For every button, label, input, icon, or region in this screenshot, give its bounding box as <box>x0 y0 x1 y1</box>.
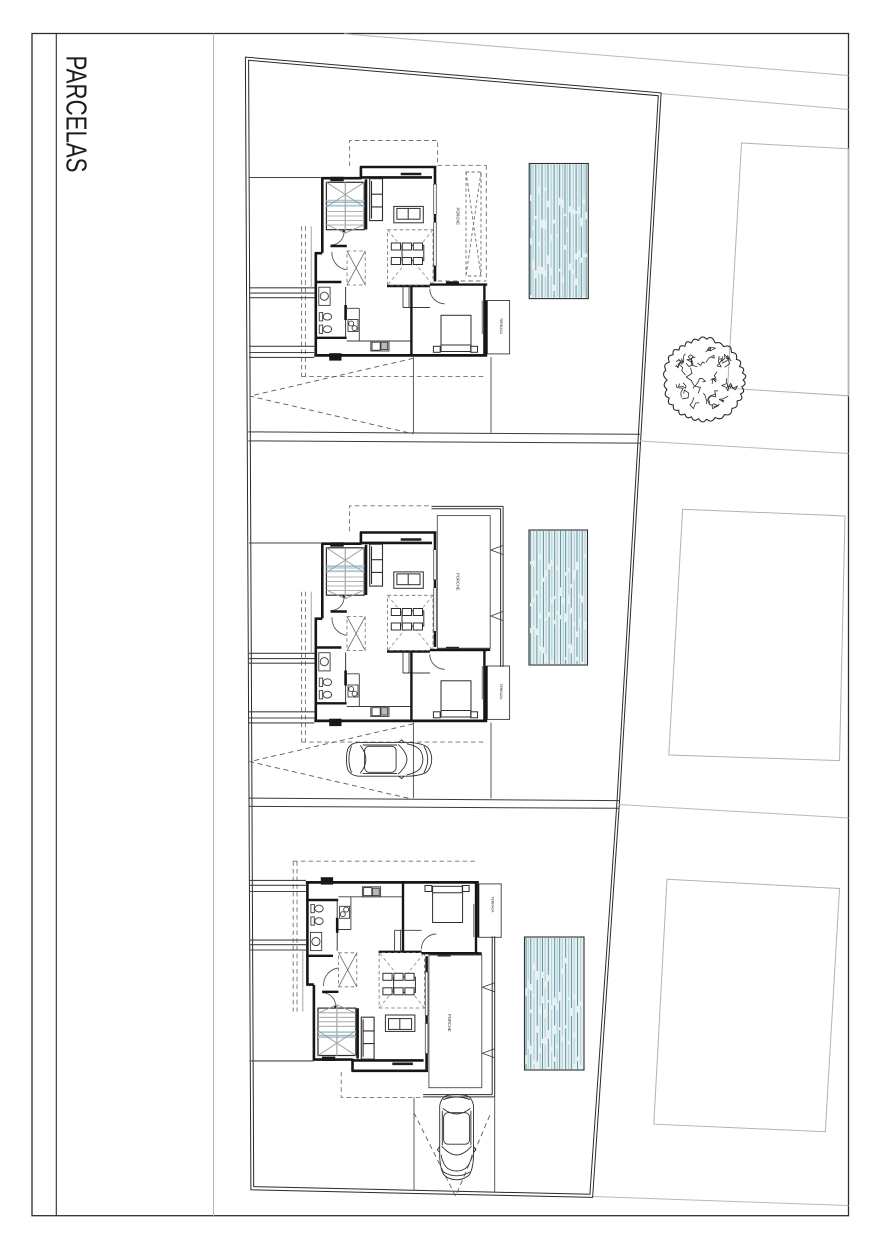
svg-text:TERRAZA: TERRAZA <box>499 684 503 701</box>
svg-text:TERRAZA: TERRAZA <box>491 897 495 914</box>
svg-text:PARCELAS: PARCELAS <box>60 56 92 173</box>
svg-text:TERRAZA: TERRAZA <box>499 318 503 335</box>
svg-text:PORCHE: PORCHE <box>456 573 461 591</box>
svg-text:PORCHE: PORCHE <box>447 1014 452 1032</box>
svg-text:PORCHE: PORCHE <box>456 208 461 226</box>
